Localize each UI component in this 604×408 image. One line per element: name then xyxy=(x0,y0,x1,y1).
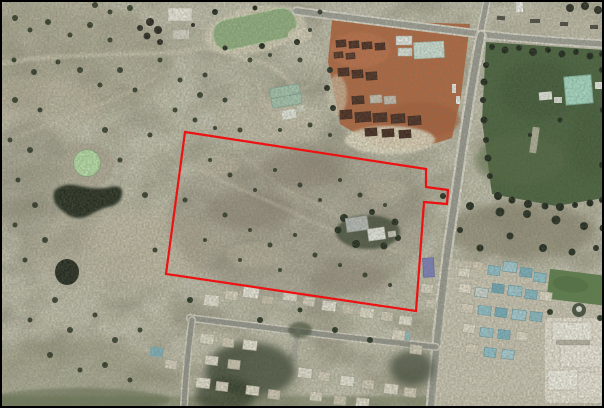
map-canvas xyxy=(0,0,604,408)
photo-grain xyxy=(0,0,604,408)
aerial-map xyxy=(0,0,604,408)
